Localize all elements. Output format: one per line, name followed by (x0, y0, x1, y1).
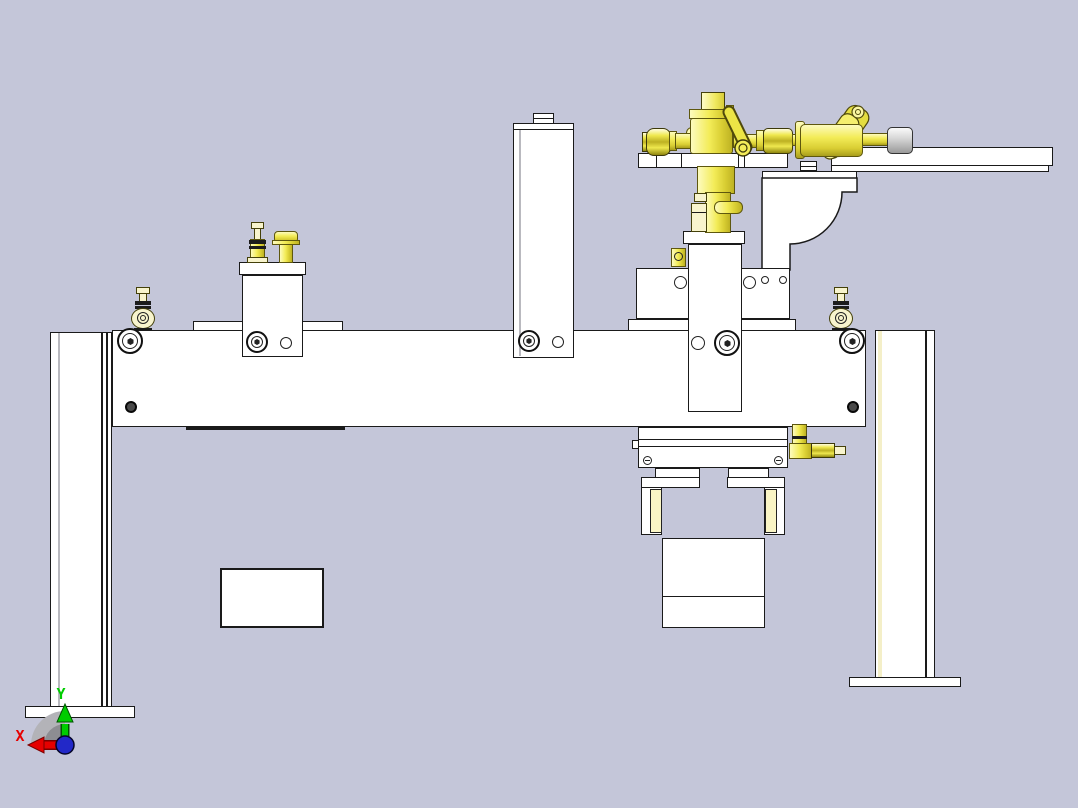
rod-fitting-stem (694, 193, 707, 202)
clamp-knob-shaft (279, 244, 293, 263)
elbow-fitting-body (789, 443, 812, 459)
manifold-hole-1 (674, 276, 687, 289)
gripper-body (638, 427, 788, 468)
manifold-hole-3 (761, 276, 769, 284)
valve-right-hexnut (763, 128, 793, 154)
top-long-plate (831, 147, 1053, 166)
valve-post (701, 92, 725, 110)
elbow-fitting-band (792, 436, 807, 439)
main-beam (112, 330, 866, 427)
beam-hole-left (125, 401, 137, 413)
air-cylinder (800, 124, 863, 157)
valve-body (690, 118, 733, 154)
top-long-plate-lip (831, 165, 1049, 172)
gripper-screw-right (774, 456, 783, 465)
workpiece-upper (662, 538, 765, 598)
finger-left-pad (650, 489, 662, 533)
right-valve-band-1 (833, 301, 849, 305)
block-side-fitting-ring (674, 252, 683, 261)
cylinder-rod (862, 133, 889, 146)
left-base-plate (25, 706, 135, 718)
elbow-fitting-hex (811, 443, 835, 458)
right-valve-dot (838, 315, 844, 321)
left-valve-base (134, 328, 152, 330)
x-axis-arrow (28, 737, 65, 753)
valve-flange-lip (726, 105, 734, 111)
finger-right-pad (765, 489, 777, 533)
left-valve-dot (140, 315, 146, 321)
rod-collar (714, 201, 743, 214)
left-clamp-top-plate (239, 262, 306, 275)
block-hole (691, 336, 705, 350)
column-hole (552, 336, 564, 348)
tall-column (513, 123, 574, 358)
valve-left-hexnut (646, 128, 671, 156)
manifold-hole-2 (743, 276, 756, 289)
clamp-hole (280, 337, 292, 349)
rod-end-hexnut (887, 127, 913, 154)
valve-right-arm (733, 134, 758, 148)
rod-fitting-block (691, 203, 707, 232)
right-base-plate (849, 677, 961, 687)
right-valve-base (832, 328, 850, 330)
cad-viewport[interactable]: X Y (0, 0, 1078, 808)
cylinder-block (688, 244, 742, 412)
manifold-hole-4 (779, 276, 787, 284)
x-axis-label: X (15, 727, 24, 745)
z-axis-dot (56, 736, 74, 754)
gripper-screw-left (643, 456, 652, 465)
beam-shadow (186, 426, 345, 430)
triad-arc-inner (44, 724, 65, 745)
piston-rod-upper (697, 166, 735, 194)
plunger-base (247, 257, 268, 263)
right-column (875, 330, 935, 678)
bracket-top-plate (762, 171, 857, 179)
beam-hole-right (847, 401, 859, 413)
gripper-rail-groove (638, 439, 788, 447)
left-column (50, 332, 112, 708)
reference-block (220, 568, 324, 628)
left-valve-band-1 (135, 301, 151, 305)
shim-stack (800, 161, 817, 171)
plunger-band-2 (249, 246, 266, 249)
workpiece-lower (662, 596, 765, 628)
gripper-left-tab (632, 440, 639, 449)
plunger-band-1 (249, 240, 266, 244)
valve-left-arm (675, 133, 691, 149)
elbow-fitting-tip (834, 446, 846, 455)
